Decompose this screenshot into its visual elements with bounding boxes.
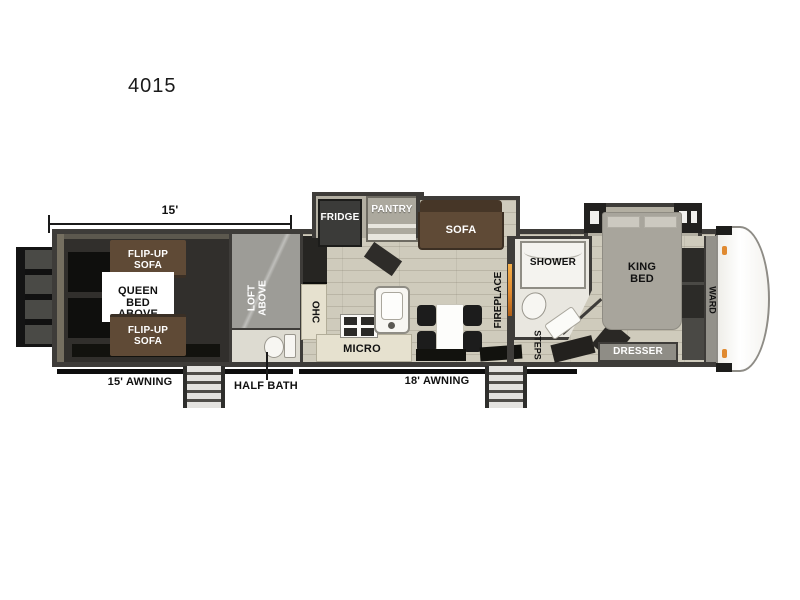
wardrobe-cabinet — [682, 248, 704, 360]
floorplan-canvas: 4015 15' FLIP-UP SOFA QUEEN BED ABOVE FL… — [0, 0, 800, 600]
dimension-line — [49, 223, 292, 225]
fireplace-label: FIREPLACE — [494, 272, 505, 329]
micro-label: MICRO — [322, 344, 402, 356]
stove-burner-4 — [361, 328, 374, 336]
king-bed-label: KING BED — [622, 262, 662, 285]
entry-steps-garage — [183, 366, 225, 408]
flip-up-sofa-bottom-label: FLIP-UP SOFA — [118, 326, 178, 347]
bedroom-corner-window-right-pane-2 — [691, 211, 697, 223]
toilet-tank-half-bath — [284, 334, 296, 358]
fridge-label: FRIDGE — [319, 213, 361, 224]
dinette-chair-3 — [463, 305, 482, 326]
sofa-label: SOFA — [431, 225, 491, 237]
dimension-tick-left — [48, 215, 50, 233]
stove-burner-2 — [361, 317, 374, 325]
king-bed-pillow-right — [644, 216, 677, 228]
kitchen-sink-basin — [381, 292, 403, 320]
shower-label: SHOWER — [521, 258, 585, 269]
awning-bar-rear — [57, 369, 293, 374]
awning-rear-label: 15' AWNING — [92, 377, 188, 389]
king-bed-pillow-left — [607, 216, 640, 228]
front-cap-trim-bottom — [716, 363, 732, 372]
half-bath-label: HALF BATH — [220, 381, 312, 393]
bedroom-corner-window-left-pane — [590, 211, 599, 224]
front-cap-marker-light-top — [722, 246, 727, 255]
awning-bar-main — [299, 369, 577, 374]
awning-main-label: 18' AWNING — [388, 376, 486, 388]
model-number: 4015 — [128, 75, 177, 98]
front-cap-marker-light-bottom — [722, 349, 727, 358]
flip-up-sofa-top-label: FLIP-UP SOFA — [118, 250, 178, 271]
steps-label: STEPS — [532, 330, 541, 360]
kitchen-faucet — [388, 322, 395, 329]
living-floor-mat-2 — [480, 345, 523, 362]
stove-burner-3 — [344, 328, 357, 336]
dresser-label: DRESSER — [600, 347, 676, 358]
pantry — [366, 196, 418, 242]
half-bath-callout-line — [266, 352, 268, 380]
living-floor-mat-1 — [416, 349, 466, 361]
garage-dimension-label: 15' — [140, 204, 200, 217]
dinette-chair-1 — [417, 305, 436, 326]
rear-ramp-door — [16, 247, 56, 347]
stove-burner-1 — [344, 317, 357, 325]
ohc-label: OHC — [309, 301, 320, 323]
loft-above-label: LOFT ABOVE — [248, 272, 269, 324]
entry-steps-main — [485, 366, 527, 408]
pantry-label: PANTRY — [367, 205, 417, 216]
front-cap-trim-top — [716, 226, 732, 235]
